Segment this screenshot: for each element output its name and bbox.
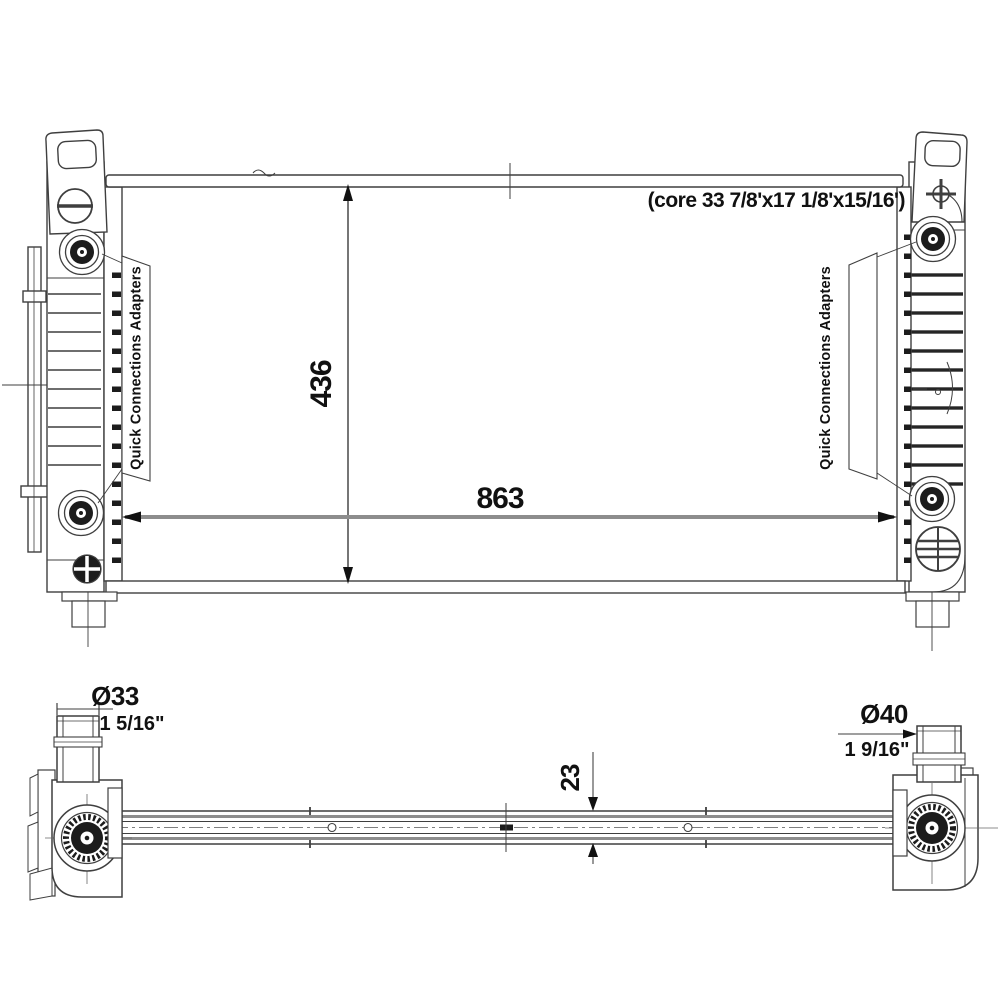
outlet-pipe [913,726,965,782]
left-stay-bracket [21,247,48,552]
inlet-pipe [54,716,102,782]
quick-connect-fitting-lower-left [59,491,104,536]
right-callout-label: Quick Connections Adapters [818,266,834,470]
core-side-plates [104,187,911,581]
inlet-diameter-label: Ø33 [91,681,139,711]
quick-connect-fitting-upper-right [911,217,956,262]
filler-cap [57,189,93,223]
width-dim-label: 863 [476,482,523,515]
profile-left-bracket [28,770,55,900]
drain-plug [73,555,101,583]
drawing-svg: (core 33 7/8'x17 1/8'x15/16') 436 863 Qu… [0,0,1000,1000]
right-core-flange [893,790,907,856]
inlet-inches-label: 1 5/16" [99,713,164,735]
core-bottom-band [106,581,905,593]
thickness-dim-label: 23 [555,764,585,791]
core-note: (core 33 7/8'x17 1/8'x15/16') [648,189,905,212]
quick-connect-fitting-lower-right [910,477,955,522]
core-top-band [106,175,903,187]
core-profile [114,803,906,852]
left-core-flange [108,788,122,858]
oil-cooler-port [916,527,960,571]
bottom-outlet-left [62,592,117,647]
height-dim-label: 436 [305,360,338,407]
height-dimension [343,184,353,584]
outlet-diameter-label: Ø40 [860,699,908,729]
thickness-dimension [588,752,598,864]
quick-connect-fitting-upper-left [60,230,105,275]
left-callout-label: Quick Connections Adapters [129,266,145,470]
profile-view [28,703,998,900]
bottom-outlet-right [906,592,959,651]
outlet-inches-label: 1 9/16" [844,739,909,761]
radiator-technical-drawing: (core 33 7/8'x17 1/8'x15/16') 436 863 Qu… [0,0,1000,1000]
